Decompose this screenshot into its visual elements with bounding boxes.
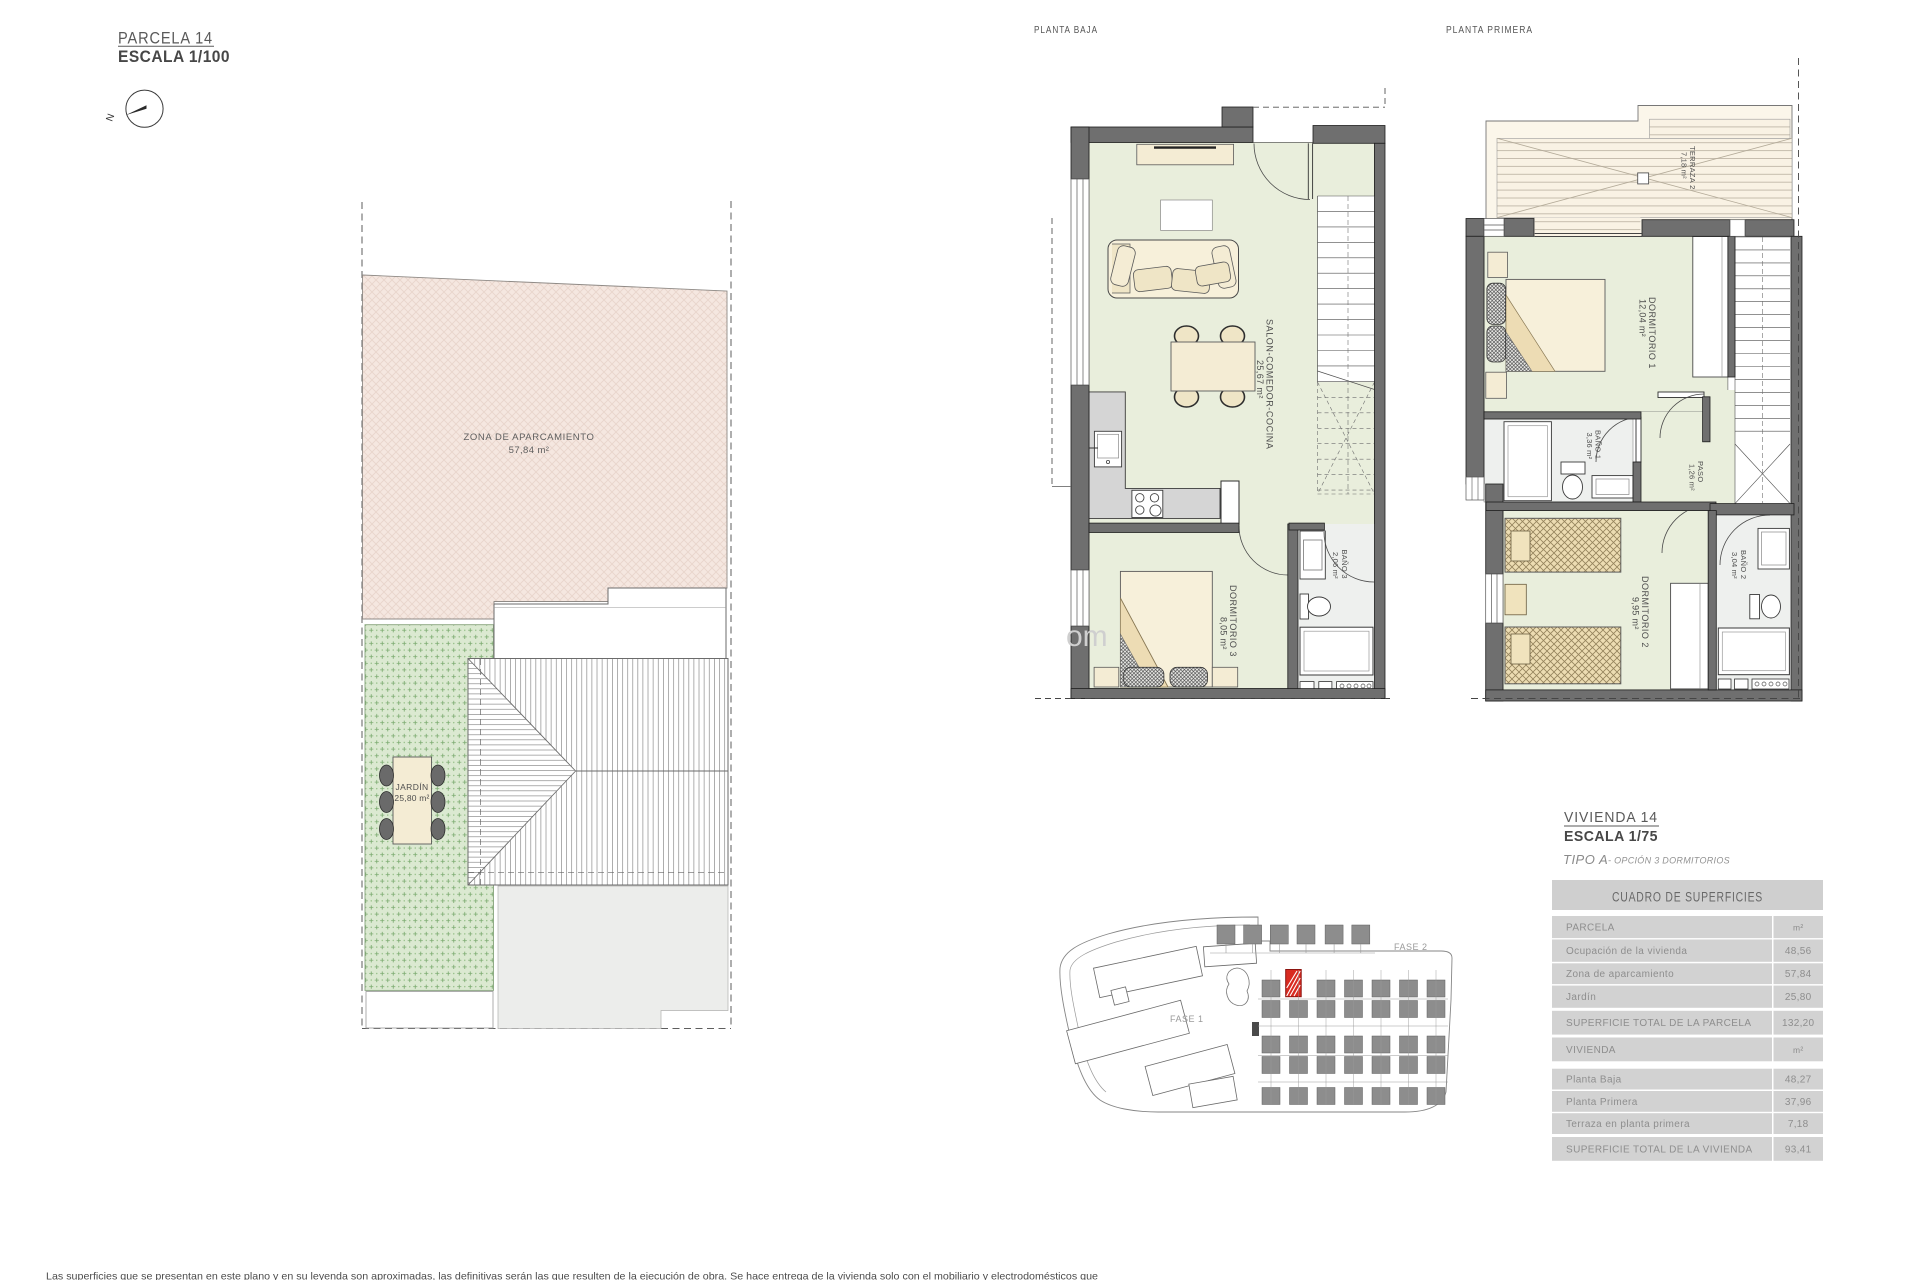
svg-text:ESCALA 1/100: ESCALA 1/100 — [118, 47, 230, 66]
svg-text:48,27: 48,27 — [1785, 1075, 1812, 1086]
svg-text:PLANTA BAJA: PLANTA BAJA — [1034, 24, 1098, 36]
svg-text:Zona de aparcamiento: Zona de aparcamiento — [1566, 969, 1674, 980]
svg-text:Jardín: Jardín — [1566, 992, 1596, 1003]
svg-text:DORMITORIO 3: DORMITORIO 3 — [1228, 585, 1238, 657]
svg-text:- OPCIÓN 3 DORMITORIOS: - OPCIÓN 3 DORMITORIOS — [1608, 856, 1730, 866]
svg-text:7,18: 7,18 — [1788, 1119, 1809, 1130]
svg-text:2,06 m²: 2,06 m² — [1331, 552, 1340, 579]
svg-text:om: om — [1066, 620, 1108, 653]
svg-text:9,95 m²: 9,95 m² — [1631, 597, 1641, 630]
svg-text:ESCALA 1/75: ESCALA 1/75 — [1564, 828, 1658, 845]
svg-text:m²: m² — [1793, 1045, 1804, 1055]
svg-text:SUPERFICIE TOTAL DE LA VIVIEND: SUPERFICIE TOTAL DE LA VIVIENDA — [1566, 1144, 1753, 1155]
svg-text:JARDÍN: JARDÍN — [395, 782, 428, 792]
svg-text:25,80: 25,80 — [1785, 992, 1812, 1003]
svg-text:PLANTA PRIMERA: PLANTA PRIMERA — [1446, 24, 1533, 36]
svg-text:DORMITORIO 1: DORMITORIO 1 — [1647, 297, 1657, 369]
svg-text:3,04 m²: 3,04 m² — [1730, 552, 1739, 579]
svg-text:25,80 m²: 25,80 m² — [394, 793, 429, 803]
svg-text:Terraza en planta primera: Terraza en planta primera — [1566, 1119, 1690, 1130]
svg-text:93,41: 93,41 — [1785, 1144, 1812, 1155]
svg-text:VIVIENDA 14: VIVIENDA 14 — [1564, 809, 1658, 826]
svg-text:DORMITORIO 2: DORMITORIO 2 — [1640, 576, 1650, 648]
svg-text:SUPERFICIE TOTAL DE LA PARCELA: SUPERFICIE TOTAL DE LA PARCELA — [1566, 1018, 1751, 1029]
svg-text:CUADRO DE SUPERFICIES: CUADRO DE SUPERFICIES — [1612, 890, 1763, 905]
svg-text:FASE 2: FASE 2 — [1394, 942, 1428, 952]
svg-text:FASE 1: FASE 1 — [1170, 1014, 1204, 1024]
svg-text:7,18 m²: 7,18 m² — [1680, 152, 1689, 179]
svg-text:TIPO A: TIPO A — [1563, 852, 1608, 867]
svg-text:25,67 m²: 25,67 m² — [1255, 360, 1265, 399]
svg-text:PARCELA 14: PARCELA 14 — [118, 29, 213, 48]
svg-text:m²: m² — [1793, 923, 1804, 933]
svg-text:BAÑO 3: BAÑO 3 — [1340, 550, 1349, 579]
svg-text:VIVIENDA: VIVIENDA — [1566, 1045, 1616, 1056]
svg-text:Ocupación de la vivienda: Ocupación de la vivienda — [1566, 946, 1687, 957]
svg-text:BAÑO 2: BAÑO 2 — [1739, 550, 1748, 579]
svg-text:ZONA DE APARCAMIENTO: ZONA DE APARCAMIENTO — [464, 432, 595, 443]
svg-text:Las superficies que se present: Las superficies que se presentan en este… — [46, 1271, 1098, 1280]
svg-text:57,84 m²: 57,84 m² — [509, 445, 550, 456]
svg-text:PARCELA: PARCELA — [1566, 923, 1615, 934]
svg-text:132,20: 132,20 — [1782, 1018, 1815, 1029]
svg-text:8,05 m²: 8,05 m² — [1219, 617, 1229, 650]
svg-text:Planta Baja: Planta Baja — [1566, 1075, 1622, 1086]
svg-text:1,26 m²: 1,26 m² — [1688, 464, 1697, 491]
svg-text:Planta Primera: Planta Primera — [1566, 1097, 1638, 1108]
svg-text:37,96: 37,96 — [1785, 1097, 1812, 1108]
svg-text:3,36 m²: 3,36 m² — [1585, 433, 1594, 460]
svg-text:12,04 m²: 12,04 m² — [1638, 299, 1648, 337]
svg-text:48,56: 48,56 — [1785, 946, 1812, 957]
svg-text:57,84: 57,84 — [1785, 969, 1812, 980]
svg-text:SALON-COMEDOR-COCINA: SALON-COMEDOR-COCINA — [1265, 319, 1275, 450]
